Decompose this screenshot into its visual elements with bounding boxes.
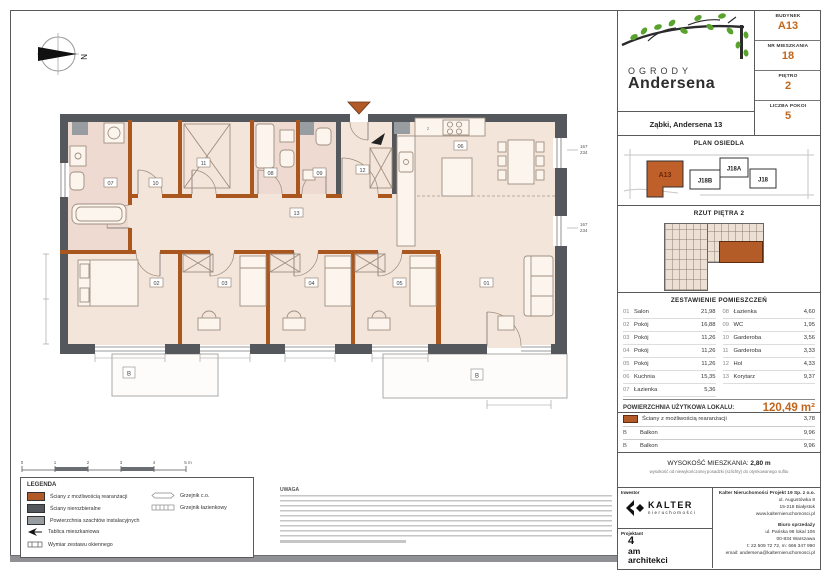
floor-key-plan-section: RZUT PIĘTRA 2	[618, 206, 820, 293]
legend-item: Powierzchnia szachtów instalacyjnych	[27, 516, 140, 525]
room-label-01: 01	[483, 281, 489, 287]
balcony-row: B Balkon 9,96	[623, 427, 815, 441]
svg-text:234: 234	[580, 150, 588, 155]
usable-area-label: POWIERZCHNIA UŻYTKOWA LOKALU:	[623, 405, 763, 411]
structural-walls-swatch-icon	[27, 504, 45, 513]
rearrangeable-walls-row: Ściany z możliwością rearanżacji 3,78	[623, 413, 815, 427]
kalter-name: KALTER	[648, 501, 697, 510]
legend-item: Ściany z możliwością rearanżacji	[27, 492, 127, 501]
unit-info: BUDYNEK A13 NR MIESZKANIA 18 PIĘTRO 2 LI…	[754, 11, 821, 135]
room-label-06: 06	[457, 144, 463, 150]
window-dimension-labels: 167 234 167 234	[567, 144, 588, 233]
building-j18a-label: J18A	[727, 167, 742, 173]
balcony-right: B	[383, 354, 567, 398]
balcony-label: B	[127, 372, 131, 378]
building-j18b-label: J18B	[698, 179, 713, 185]
table-row: 09WC1,95	[723, 319, 816, 332]
table-row: 12Hol4,33	[723, 358, 816, 371]
svg-text:234: 234	[580, 228, 588, 233]
room-label-13: 13	[293, 211, 299, 217]
window-dimension-legend-icon	[27, 540, 43, 549]
height-value: 2,80 m	[750, 460, 770, 467]
rearrangeable-walls-swatch-icon	[27, 492, 45, 501]
investor-caption: Inwestor	[618, 488, 712, 495]
room-label-11: 11	[201, 161, 207, 167]
table-row: 04Pokój11,26	[623, 345, 716, 358]
table-row: 03Pokój11,26	[623, 332, 716, 345]
info-liczba-pokoi: LICZBA POKOI 5	[755, 101, 821, 131]
room-label-02: 02	[153, 281, 159, 287]
table-row: 05Pokój11,26	[623, 358, 716, 371]
sales-office-email: email: andersena@kalternieruchomosci.pl	[718, 551, 815, 558]
notes-title: UWAGA	[280, 487, 612, 493]
legend-item: Wymiar zestawu okiennego	[27, 540, 113, 549]
panel-footer: Inwestor KALTER nieruchomości Projektant	[618, 488, 820, 568]
info-nr-mieszkania: NR MIESZKANIA 18	[755, 41, 821, 71]
sales-office-line: ul. Pańska 98 lokal 106	[718, 530, 815, 537]
floor-fill	[64, 116, 561, 348]
height-note: wysokość od niewykończonej posadzki (szl…	[618, 467, 820, 474]
company-website: www.kalternieruchomosci.pl	[718, 512, 815, 519]
kalter-logo-icon	[624, 498, 644, 518]
svg-text:4: 4	[153, 460, 156, 465]
legend-item: Ściany nierozbieralne	[27, 504, 101, 513]
company-address-line: ul. Augustówka 8	[718, 498, 815, 505]
company-address-line: 15-218 Białystok	[718, 505, 815, 512]
room-label-03: 03	[221, 281, 227, 287]
room-label-08: 08	[267, 171, 273, 177]
branch-logo-icon	[618, 11, 754, 67]
info-budynek: BUDYNEK A13	[755, 11, 821, 41]
footer-left: Inwestor KALTER nieruchomości Projektant	[618, 488, 713, 568]
svg-text:2: 2	[87, 460, 90, 465]
investor-block: Inwestor KALTER nieruchomości	[618, 488, 712, 529]
svg-text:1: 1	[54, 460, 57, 465]
room-label-12: 12	[359, 168, 365, 174]
sales-office-phone: t: 22 509 72 72, m: 666 347 990	[718, 544, 815, 551]
room-label-07: 07	[107, 181, 113, 187]
kalter-subtitle: nieruchomości	[648, 510, 697, 515]
bathroom-radiator-legend-icon	[151, 504, 175, 511]
rooms-table-title: ZESTAWIENIE POMIESZCZEŃ	[618, 293, 820, 304]
scale-bar: 0 1 2 3 4 5 m	[21, 460, 192, 472]
floor-key-plan	[618, 220, 820, 292]
table-row: 08Łazienka4,60	[723, 306, 816, 319]
contact-block: Kalter Nieruchomości Projekt 19 Sp. z o.…	[713, 488, 820, 568]
building-a13-label: A13	[659, 172, 672, 179]
legend-item: Grzejnik c.o.	[151, 492, 209, 499]
notes-block: UWAGA	[280, 487, 612, 549]
site-plan-map: A13 J18B J18A J18	[618, 147, 820, 203]
shaft-area-swatch-icon	[27, 516, 45, 525]
room-label-04: 04	[308, 281, 314, 287]
panel-header: OGRODY Andersena Ząbki, Andersena 13 BUD…	[618, 11, 820, 136]
table-row: 06Kuchnia15,35	[623, 371, 716, 384]
legend-title: LEGENDA	[21, 478, 253, 490]
rearrangeable-walls-swatch-icon	[623, 415, 638, 423]
floor-key-plan-title: RZUT PIĘTRA 2	[618, 206, 820, 217]
balcony-label: B	[475, 374, 479, 380]
height-section: WYSOKOŚĆ MIESZKANIA: 2,80 m wysokość od …	[618, 453, 820, 488]
company-name: Kalter Nieruchomości Projekt 19 Sp. z o.…	[718, 491, 815, 498]
compass-north-label: N	[79, 54, 88, 60]
info-pietro: PIĘTRO 2	[755, 71, 821, 101]
logo-line2: Andersena	[628, 76, 715, 92]
legend-item: Grzejnik łazienkowy	[151, 504, 227, 511]
sales-office-caption: Biuro sprzedaży	[718, 523, 815, 530]
notes-fine-print-last-line	[280, 540, 406, 543]
room-label-09: 09	[316, 171, 322, 177]
legend-box: LEGENDA Ściany z możliwością rearanżacji…	[20, 477, 254, 558]
room-label-10: 10	[152, 181, 158, 187]
table-row: 10Garderoba3,56	[723, 332, 816, 345]
table-row: 11Garderoba3,33	[723, 345, 816, 358]
height-label: WYSOKOŚĆ MIESZKANIA:	[667, 460, 748, 467]
table-row: 01Salon21,98	[623, 306, 716, 319]
highlighted-apartment	[719, 241, 763, 263]
brand-logo: OGRODY Andersena	[618, 11, 754, 111]
table-row: 13Korytarz9,37	[723, 371, 816, 384]
site-plan-title: PLAN OSIEDLA	[618, 136, 820, 147]
floorplan-sheet: N B B	[0, 0, 830, 587]
svg-text:3: 3	[120, 460, 123, 465]
svg-text:5 m: 5 m	[184, 460, 192, 465]
info-panel: OGRODY Andersena Ząbki, Andersena 13 BUD…	[617, 10, 821, 570]
rooms-table-section: ZESTAWIENIE POMIESZCZEŃ 01Salon21,98 02P…	[618, 293, 820, 413]
radiator-legend-icon	[151, 492, 175, 499]
svg-text:167: 167	[580, 144, 588, 149]
svg-text:0: 0	[21, 460, 24, 465]
room-label-05: 05	[396, 281, 402, 287]
balcony-row: B Balkon 9,96	[623, 440, 815, 453]
svg-text:167: 167	[580, 222, 588, 227]
notes-fine-print	[280, 495, 612, 539]
project-address: Ząbki, Andersena 13	[618, 111, 754, 136]
table-row: 02Pokój16,88	[623, 319, 716, 332]
entry-marker-icon	[348, 102, 370, 114]
designer-block: Projektant 4 am architekci	[618, 529, 712, 565]
site-plan-section: PLAN OSIEDLA A13 J18B J18A J18	[618, 136, 820, 206]
table-row: 07Łazienka5,36	[623, 384, 716, 397]
rooms-table: 01Salon21,98 02Pokój16,88 03Pokój11,26 0…	[618, 304, 820, 397]
floor-key-left-wing	[664, 223, 708, 291]
entry-marker-legend-icon	[27, 528, 43, 536]
compass-icon: N	[37, 33, 88, 75]
building-j18-label: J18	[758, 178, 769, 184]
extras-section: Ściany z możliwością rearanżacji 3,78 B …	[618, 413, 820, 453]
legend-item: Tablica mieszkaniowa	[27, 528, 99, 536]
sales-office-line: 00-834 Warszawa	[718, 537, 815, 544]
